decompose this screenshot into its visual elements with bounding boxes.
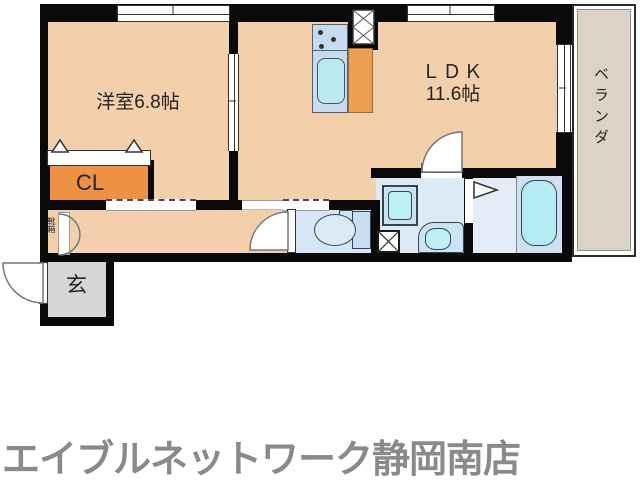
store-name: エイブルネットワーク静岡南店 [2,428,520,480]
closet-folding-door-icon [52,140,68,152]
entrance-door-arc [3,263,43,303]
closet-label: CL [50,166,130,200]
apartment-floor-plan: 洋室6.8帖 ＬＤＫ 11.6帖 CL 玄 ベランダ 靴箱 エイブルネットワーク… [0,0,640,480]
shoebox-door-arc [59,214,80,235]
toilet-door-arc [250,212,288,250]
western-room-label: 洋室6.8帖 [58,87,218,114]
shoebox-door-arc [59,235,80,255]
shoebox-label: 靴箱 [46,217,57,255]
closet-folding-door-icon [126,140,142,152]
washing-machine-pan [378,231,399,252]
ldk-size: 11.6帖 [426,84,481,105]
bathroom-door-icon [474,182,497,198]
veranda-label: ベランダ [590,66,611,206]
pipe-space-hatch [353,10,374,44]
washroom-door-arc [422,132,462,172]
ldk-name: ＬＤＫ [421,62,484,83]
door-swing-overlay [0,0,640,480]
ldk-label: ＬＤＫ 11.6帖 [382,62,524,106]
entrance-label: 玄 [46,256,107,319]
